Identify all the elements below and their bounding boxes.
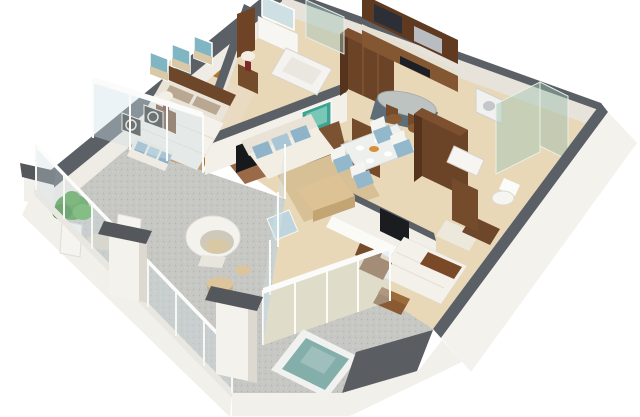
floorplan-canvas: [0, 0, 640, 417]
bar-stool-1: [386, 114, 402, 124]
dining-plate-3: [384, 152, 392, 157]
balcony-pillar-2-shade: [248, 304, 257, 383]
egg-chair-cushion: [205, 239, 229, 253]
closet2-side: [414, 108, 422, 182]
dining-plate-4: [366, 159, 374, 164]
shower2-glass-b: [540, 82, 568, 160]
lamp-right-shade: [241, 51, 255, 61]
dining-plate-1: [356, 146, 364, 151]
floorplan-rendering: [0, 0, 640, 417]
washer-door: [483, 101, 495, 111]
bath2-toilet: [492, 191, 514, 205]
balcony-stool: [235, 265, 251, 275]
egg-chair-base: [198, 255, 226, 268]
master-bath-door: [237, 7, 255, 58]
balcony-pillar-1-shade: [139, 238, 147, 303]
dining-centerpiece: [369, 146, 379, 152]
lamp-right-base: [245, 60, 251, 72]
